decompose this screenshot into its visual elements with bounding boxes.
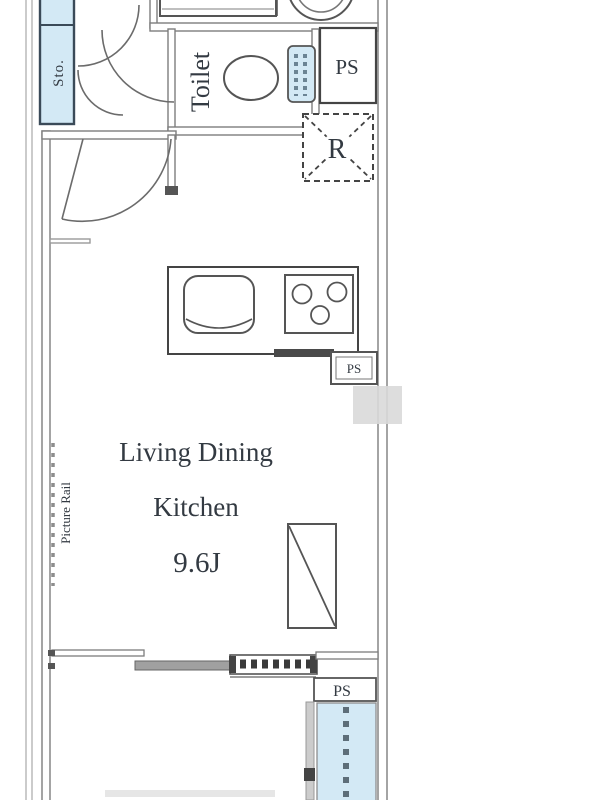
- partition-track: [52, 650, 144, 656]
- entrance-door-arc: [62, 139, 171, 221]
- shaft-side-cap: [304, 768, 315, 781]
- sliding-partition: [48, 650, 378, 677]
- wall-stub: [168, 135, 175, 187]
- washroom: [160, 0, 354, 20]
- toilet-tank: [288, 46, 315, 102]
- kitchen-unit: [168, 267, 358, 357]
- pipe-space-top-label: PS: [335, 55, 358, 79]
- pipe-space-bottom-label: PS: [333, 683, 351, 700]
- left-wall: [42, 131, 50, 800]
- toilet-label: Toilet: [186, 51, 215, 112]
- closet-door-arc-lower: [78, 70, 123, 115]
- ldk-size-label: 9.6J: [173, 547, 221, 579]
- pipe-space-kitchen-label: PS: [347, 361, 361, 376]
- partition-right-wall: [316, 652, 378, 659]
- burner-1: [293, 285, 312, 304]
- entrance-top-wall: [42, 131, 176, 139]
- shaft-side-wall: [306, 702, 314, 800]
- watermark-blob: [353, 386, 402, 424]
- screen-cap-left: [229, 656, 236, 673]
- burner-3: [311, 306, 329, 324]
- duct-shaft: [304, 702, 376, 800]
- ldk-label-line1: Living Dining: [119, 437, 273, 467]
- bottom-cutoff-smudge: [105, 790, 275, 797]
- kitchen-sink: [184, 276, 254, 333]
- storage-label: Sto.: [51, 59, 67, 87]
- toilet-left-wall: [168, 29, 175, 132]
- burner-2: [328, 283, 347, 302]
- wall-stub-cap: [165, 186, 178, 195]
- toilet-bottom-wall: [168, 127, 319, 135]
- genkan-step-line: [50, 239, 90, 243]
- floor-plan-drawing: Sto. Toilet PS R PS Living Dining Kitche…: [0, 0, 600, 800]
- toilet-fixture: [224, 46, 315, 102]
- diagonal-fixture: [288, 524, 336, 628]
- floor-plan: Sto. Toilet PS R PS Living Dining Kitche…: [0, 0, 600, 800]
- track-end-cap-1: [48, 650, 55, 656]
- washbasin-counter: [160, 0, 276, 16]
- closet-door-arc-upper: [78, 5, 139, 66]
- ldk-label-line2: Kitchen: [153, 492, 239, 522]
- toilet-bowl: [224, 56, 278, 100]
- counter-wall-bar: [274, 349, 334, 357]
- picture-rail-label: Picture Rail: [58, 482, 73, 544]
- refrigerator-label: R: [328, 134, 347, 165]
- track-end-cap-2: [48, 663, 55, 669]
- door-swing-arcs: [62, 5, 174, 221]
- sliding-panel: [135, 661, 231, 670]
- entrance-door-leaf: [62, 139, 83, 219]
- balcony-edge-line: [26, 0, 32, 800]
- washroom-door-arc: [102, 30, 174, 102]
